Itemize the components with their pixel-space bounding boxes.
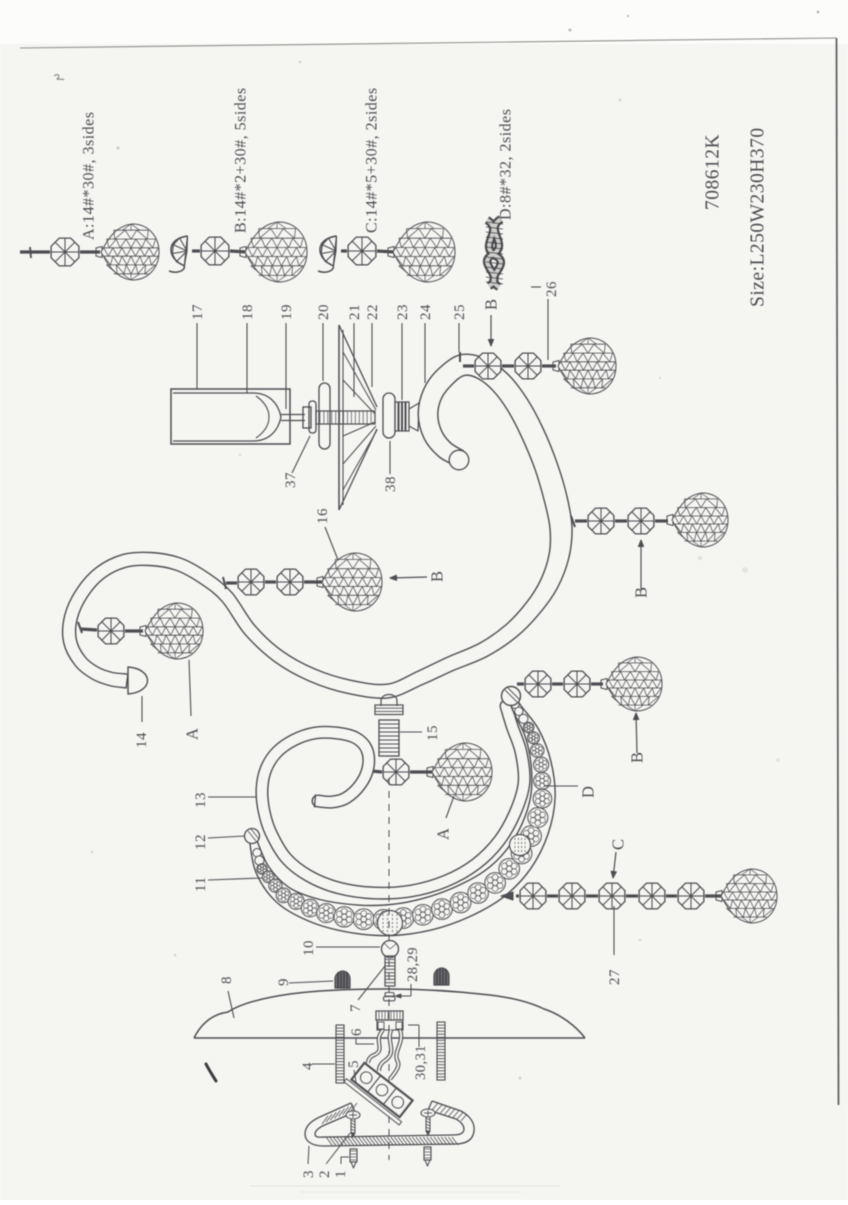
svg-text:18: 18 <box>240 304 256 320</box>
svg-text:A: A <box>433 828 452 840</box>
svg-text:2: 2 <box>317 1170 333 1178</box>
svg-text:14: 14 <box>134 732 150 748</box>
svg-text:30,31: 30,31 <box>413 1045 429 1080</box>
svg-text:16: 16 <box>315 508 331 524</box>
svg-text:17: 17 <box>190 304 206 320</box>
svg-text:6: 6 <box>349 1028 365 1036</box>
svg-text:37: 37 <box>283 472 299 488</box>
svg-text:9: 9 <box>276 978 292 986</box>
svg-text:5: 5 <box>346 1060 362 1068</box>
svg-text:D: D <box>578 786 597 798</box>
svg-text:D:8#*32, 2sides: D:8#*32, 2sides <box>497 109 514 221</box>
svg-text:21: 21 <box>347 304 363 320</box>
svg-text:26: 26 <box>544 281 560 297</box>
svg-text:A: A <box>182 728 201 740</box>
svg-text:Size:L250W230H370: Size:L250W230H370 <box>747 127 768 307</box>
svg-text:B:14#*2+30#, 5sides: B:14#*2+30#, 5sides <box>232 87 249 233</box>
svg-text:24: 24 <box>418 304 434 320</box>
svg-text:23: 23 <box>395 304 411 320</box>
svg-text:B: B <box>481 298 500 310</box>
svg-text:28,29: 28,29 <box>405 947 421 982</box>
svg-text:27: 27 <box>607 969 623 985</box>
svg-text:A:14#*30#, 3sides: A:14#*30#, 3sides <box>80 112 97 241</box>
svg-text:B: B <box>627 751 646 763</box>
svg-text:11: 11 <box>193 877 209 892</box>
svg-text:19: 19 <box>279 304 295 320</box>
svg-text:12: 12 <box>193 834 209 850</box>
svg-text:C:14#*5+30#, 2sides: C:14#*5+30#, 2sides <box>363 87 380 233</box>
svg-text:4: 4 <box>300 1062 316 1070</box>
svg-text:38: 38 <box>383 476 399 492</box>
svg-text:3: 3 <box>301 1170 317 1178</box>
svg-text:8: 8 <box>219 976 235 984</box>
svg-text:22: 22 <box>365 304 381 320</box>
svg-text:7: 7 <box>348 1004 364 1012</box>
svg-text:13: 13 <box>193 792 209 808</box>
svg-text:25: 25 <box>452 304 468 320</box>
svg-text:20: 20 <box>316 304 332 320</box>
svg-text:B: B <box>427 570 446 582</box>
svg-text:1: 1 <box>333 1170 349 1178</box>
svg-text:708612K: 708612K <box>702 134 723 210</box>
svg-text:10: 10 <box>301 940 317 956</box>
svg-text:15: 15 <box>425 725 441 741</box>
svg-text:C: C <box>608 838 627 850</box>
